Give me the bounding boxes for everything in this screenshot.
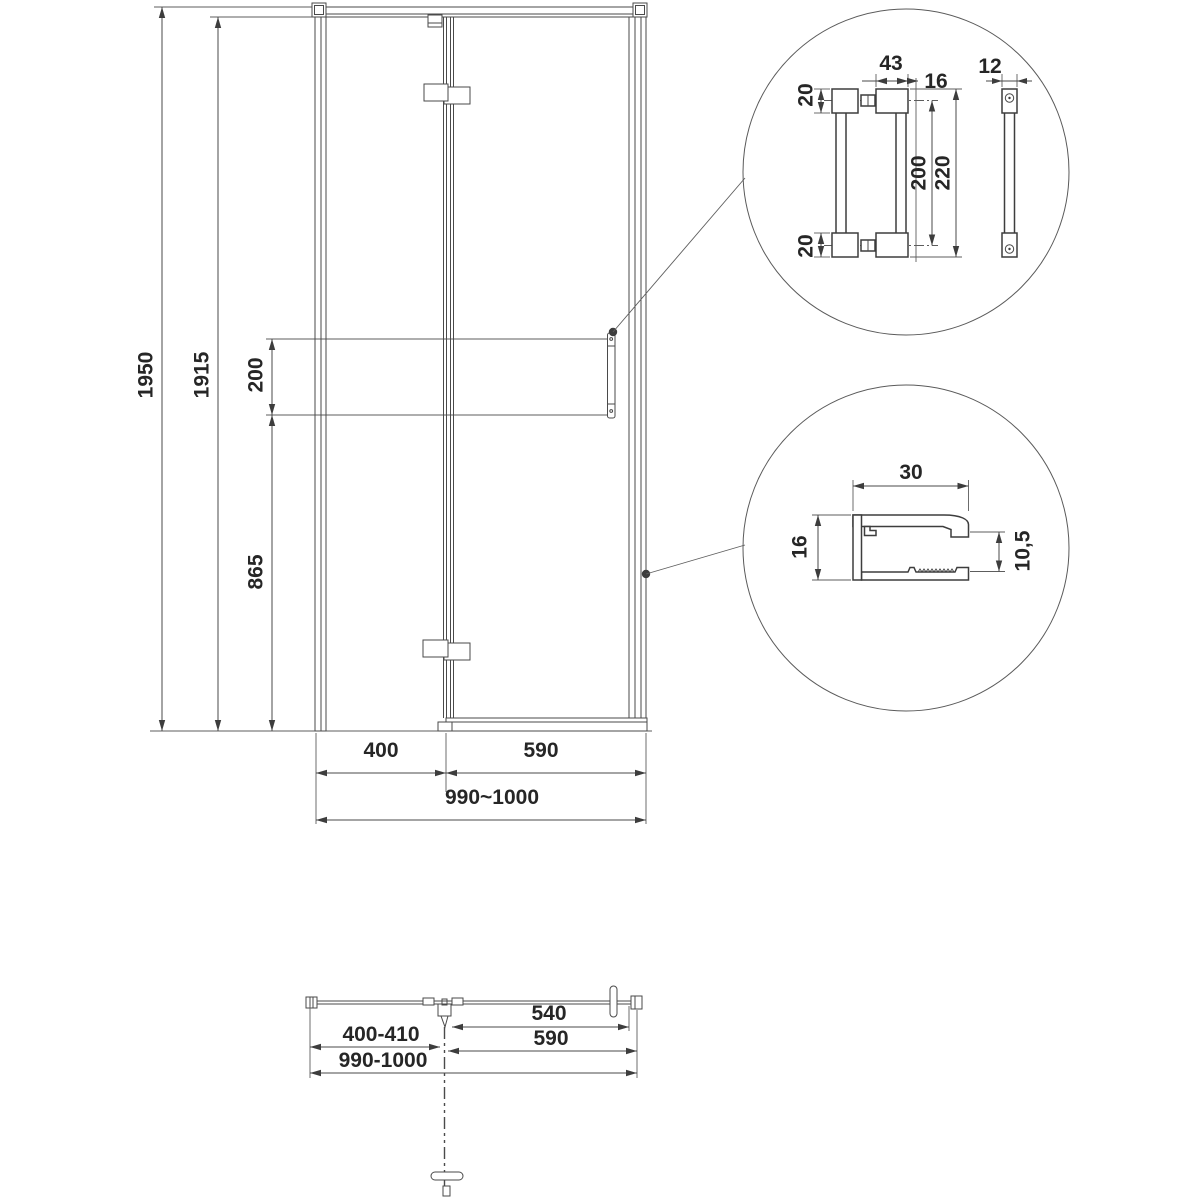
open-door-edge-tip bbox=[443, 1186, 450, 1196]
technical-drawing-canvas: 1950 1915 200 865 400 590 990~1000 bbox=[0, 0, 1200, 1200]
dim-block-height-top-label: 20 bbox=[795, 83, 818, 106]
handle-detail-circle: 43 16 20 20 200 220 12 bbox=[743, 9, 1069, 335]
bottom-sill-profile bbox=[446, 718, 647, 731]
dim-width-door-label: 590 bbox=[523, 739, 558, 762]
front-view-dimensions: 1950 1915 200 865 400 590 990~1000 bbox=[135, 7, 647, 820]
dim-block-height-bottom-label: 20 bbox=[795, 234, 818, 257]
handle-detail-dimensions: 43 16 20 20 200 220 12 bbox=[795, 52, 1033, 258]
top-pivot-bracket bbox=[428, 15, 442, 27]
dim-profile-height-label: 16 bbox=[789, 535, 812, 558]
dim-door-glass-width-label: 540 bbox=[531, 1002, 566, 1025]
dim-profile-width-label: 30 bbox=[899, 461, 922, 484]
dim-width-fixed-label: 400 bbox=[363, 739, 398, 762]
door-pivot bbox=[423, 998, 463, 1027]
dim-bar-width-label: 12 bbox=[978, 55, 1001, 78]
leader-to-profile-detail bbox=[642, 545, 745, 578]
hinge-bottom bbox=[423, 640, 470, 660]
wall-bracket-right bbox=[631, 996, 642, 1009]
dim-block-width-label: 43 bbox=[879, 52, 902, 75]
dim-block-glass-label: 16 bbox=[924, 70, 947, 93]
dim-handle-floor-label: 865 bbox=[245, 554, 268, 589]
handle-side-view bbox=[1002, 89, 1017, 257]
dim-fixed-range-label: 400-410 bbox=[342, 1023, 419, 1046]
front-view: 1950 1915 200 865 400 590 990~1000 bbox=[135, 3, 746, 824]
top-view: 540 400-410 590 990-1000 bbox=[306, 986, 642, 1196]
door-handle bbox=[608, 333, 616, 418]
dim-height-glass-label: 1915 bbox=[191, 351, 214, 398]
dim-width-total-label: 990~1000 bbox=[445, 786, 539, 809]
wall-bracket-left bbox=[306, 997, 317, 1008]
dim-mount-spacing-label: 200 bbox=[908, 155, 931, 190]
top-view-dimensions: 540 400-410 590 990-1000 bbox=[310, 1002, 637, 1078]
dim-door-width-label: 590 bbox=[533, 1027, 568, 1050]
profile-detail-circle: 30 16 10,5 bbox=[743, 385, 1069, 711]
dim-total-length-label: 220 bbox=[932, 155, 955, 190]
hinge-top bbox=[424, 84, 470, 104]
dim-handle-length-label: 200 bbox=[245, 357, 268, 392]
open-door-handle bbox=[431, 1172, 463, 1180]
handle-front-view bbox=[832, 89, 908, 257]
door-frame bbox=[312, 3, 647, 731]
dim-profile-inner-height-label: 10,5 bbox=[1012, 530, 1035, 571]
profile-cross-section bbox=[853, 515, 969, 580]
dim-height-total-label: 1950 bbox=[135, 352, 158, 399]
top-view-geometry bbox=[306, 986, 642, 1196]
handle-top-view bbox=[610, 986, 617, 1017]
shower-door-diagram: 1950 1915 200 865 400 590 990~1000 bbox=[0, 0, 1200, 1200]
dim-total-range-label: 990-1000 bbox=[339, 1049, 428, 1072]
